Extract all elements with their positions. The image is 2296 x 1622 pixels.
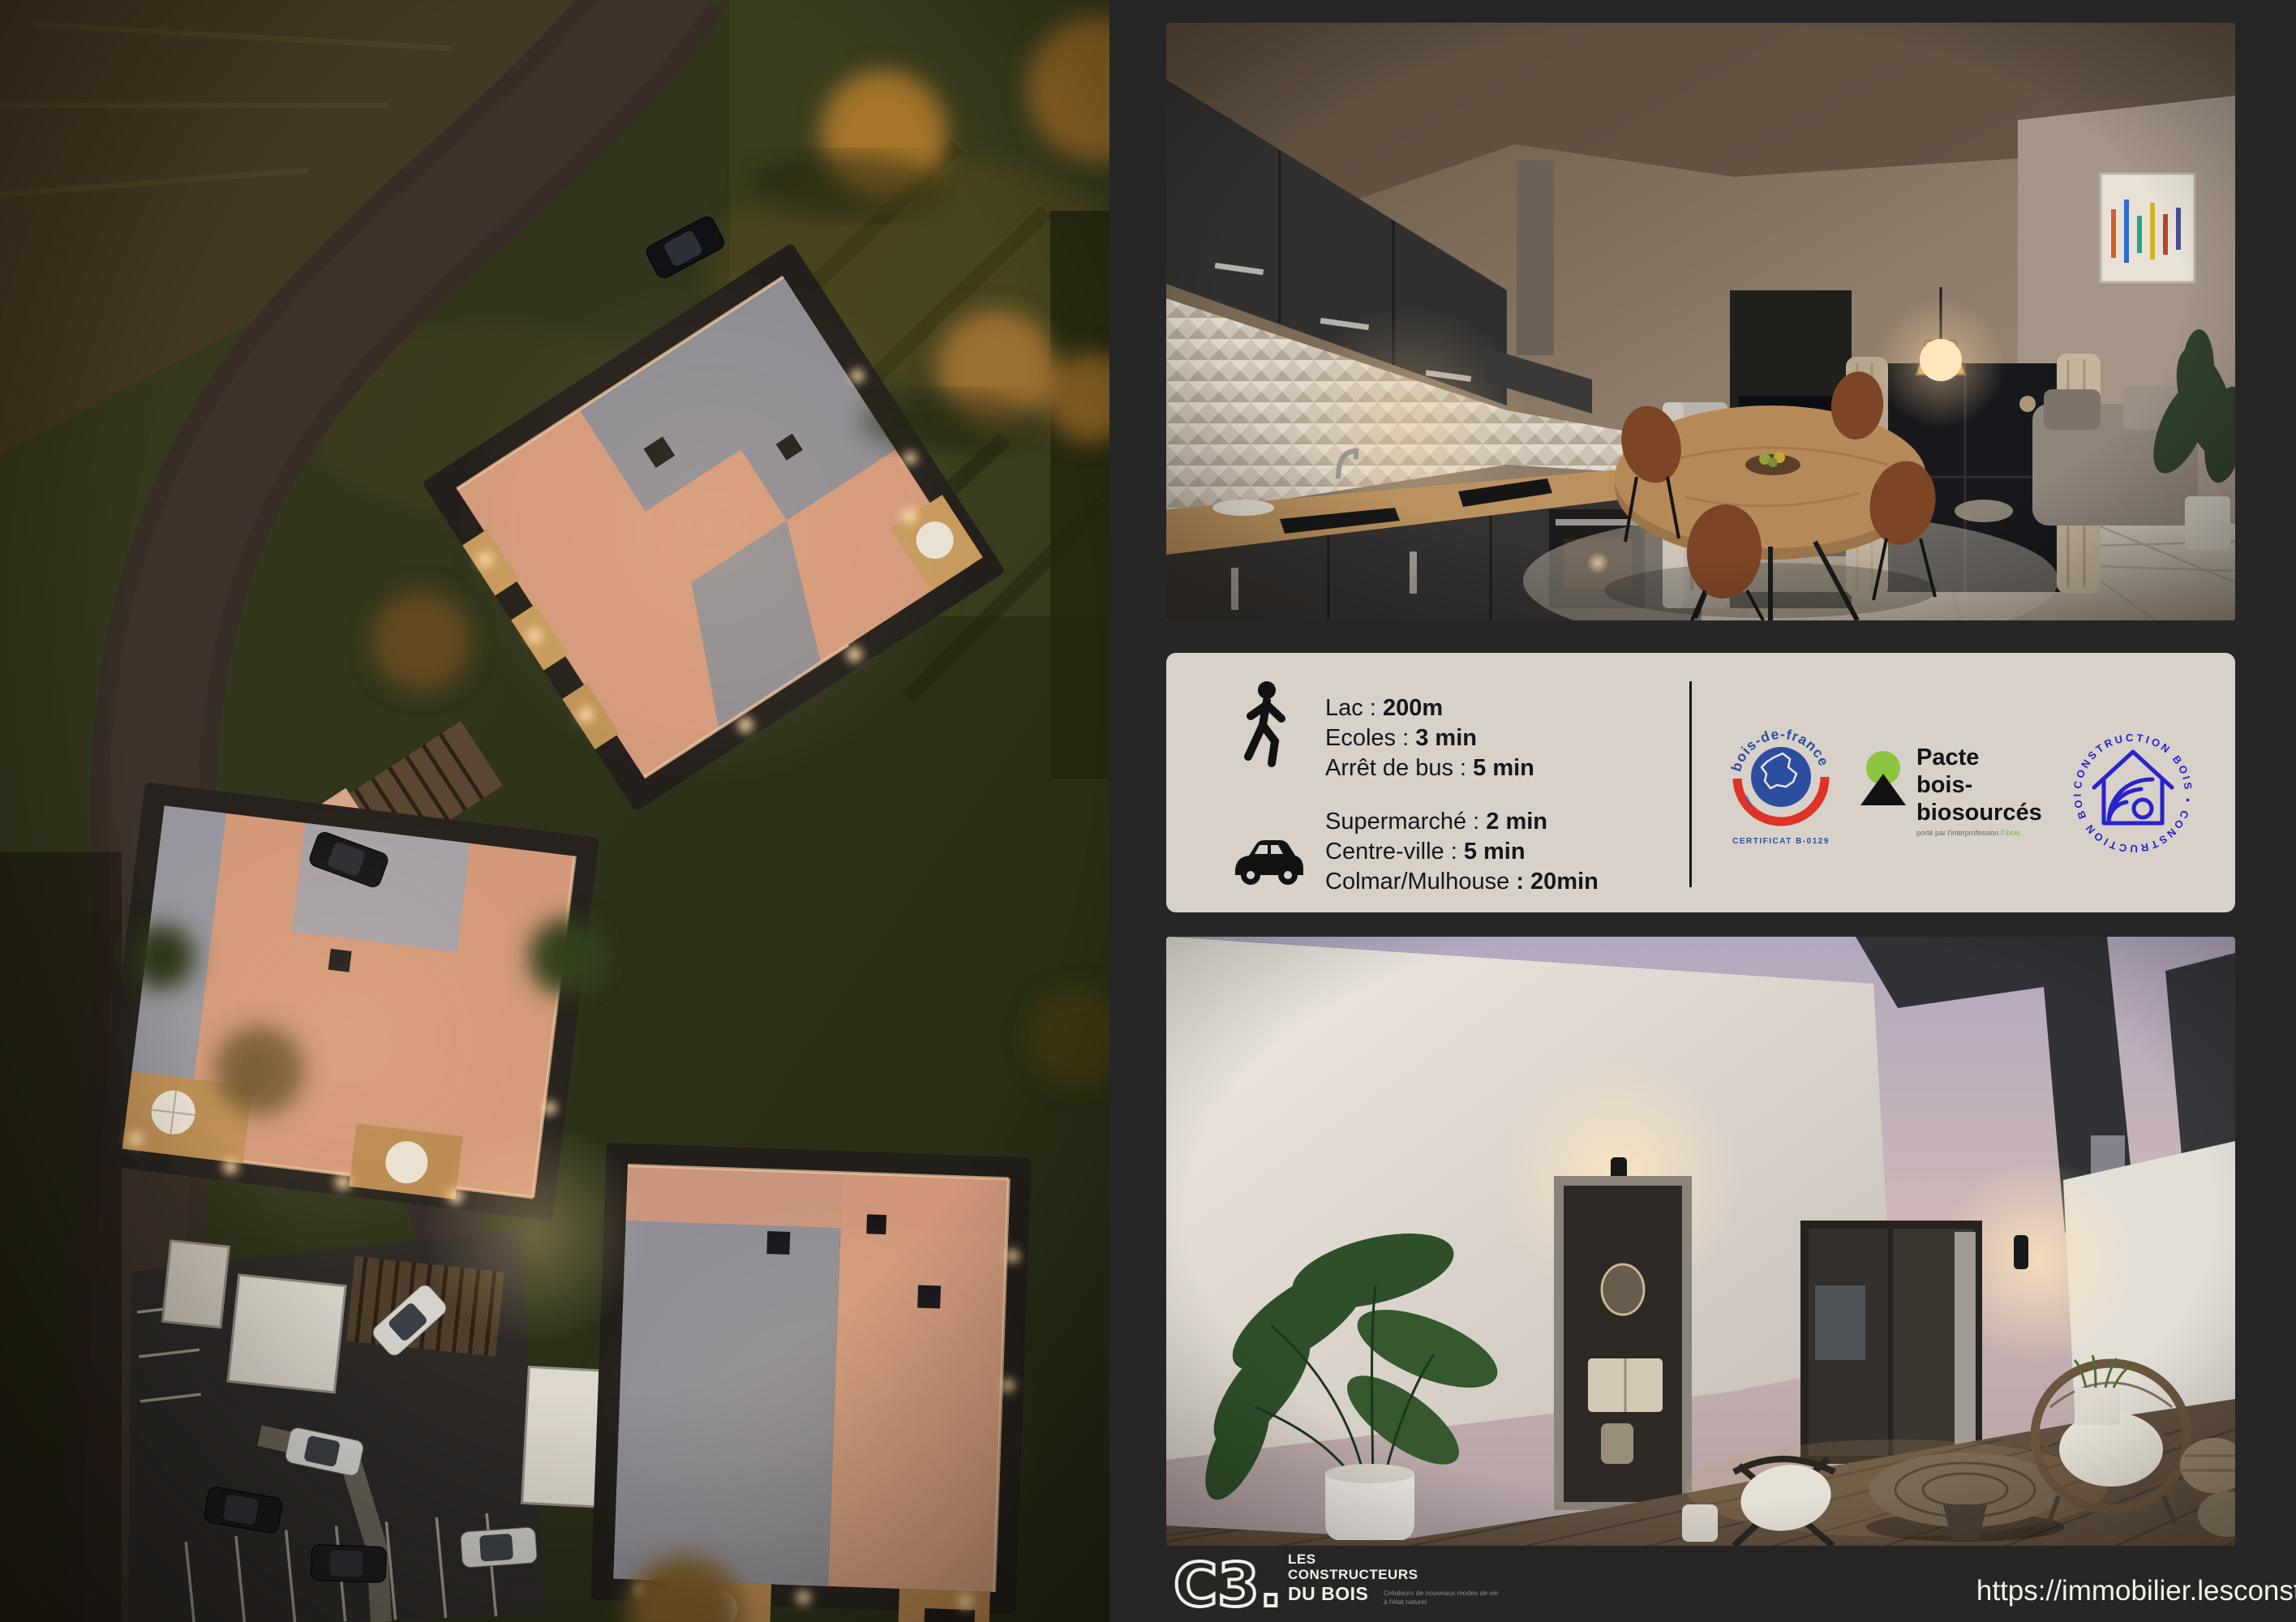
terrace-photo	[1166, 937, 2235, 1546]
car-icon	[1230, 833, 1309, 888]
brand-line-constructeurs: CONSTRUCTEURS	[1288, 1567, 1418, 1583]
website-url[interactable]: https://immobilier.lesconstructeursduboi…	[1677, 1575, 2296, 1607]
brand-tagline: Créateurs de nouveaux modes de vie à l'é…	[1384, 1589, 1562, 1607]
walk-row-lac: Lac : 200m	[1325, 693, 1534, 723]
pacte-bois-biosources-logo: Pacte bois- biosourcés porté par l'inter…	[1852, 738, 2071, 847]
svg-text:bois-: bois-	[1916, 772, 1972, 798]
walk-row-ecoles: Ecoles : 3 min	[1325, 723, 1534, 753]
kitchen-photo	[1166, 23, 2235, 620]
brand-line-les: LES	[1288, 1551, 1418, 1567]
footer-bar: C3. LES CONSTRUCTEURS DU BOIS Créateurs …	[1109, 1546, 2296, 1622]
terrace-scene	[1166, 937, 2235, 1546]
svg-text:biosourcés: biosourcés	[1916, 800, 2042, 826]
svg-text:CERTIFICAT B-0129: CERTIFICAT B-0129	[1732, 837, 1830, 846]
real-estate-flyer: Lac : 200m Ecoles : 3 min Arrêt de bus :…	[0, 0, 2296, 1622]
svg-text:porté par l'interprofession Fi: porté par l'interprofession Fibois	[1916, 829, 2020, 837]
walking-times: Lac : 200m Ecoles : 3 min Arrêt de bus :…	[1325, 693, 1534, 783]
drive-row-colmar-mulhouse: Colmar/Mulhouse : 20min	[1325, 867, 1599, 897]
c3-logo: C3.	[1172, 1552, 1294, 1620]
panel-divider	[1689, 681, 1692, 887]
driving-times: Supermarché : 2 min Centre-ville : 5 min…	[1325, 807, 1599, 897]
svg-text:C3.: C3.	[1174, 1552, 1282, 1620]
kitchen-scene	[1166, 23, 2235, 620]
location-info-panel: Lac : 200m Ecoles : 3 min Arrêt de bus :…	[1166, 653, 2235, 912]
drive-row-supermarche: Supermarché : 2 min	[1325, 807, 1599, 837]
aerial-scene	[0, 0, 1109, 1622]
bois-de-france-logo: bois-de-france www CERTIFICAT B-0129	[1720, 712, 1842, 852]
aerial-night-photo	[0, 0, 1109, 1622]
construction-bois-stamp: CONSTRUCTION BOIS • CONSTRUCTION BOIS •	[2062, 718, 2204, 860]
svg-text:Pacte: Pacte	[1916, 744, 1979, 770]
walk-row-bus: Arrêt de bus : 5 min	[1325, 753, 1534, 783]
pedestrian-icon	[1238, 680, 1296, 770]
drive-row-centre-ville: Centre-ville : 5 min	[1325, 837, 1599, 867]
